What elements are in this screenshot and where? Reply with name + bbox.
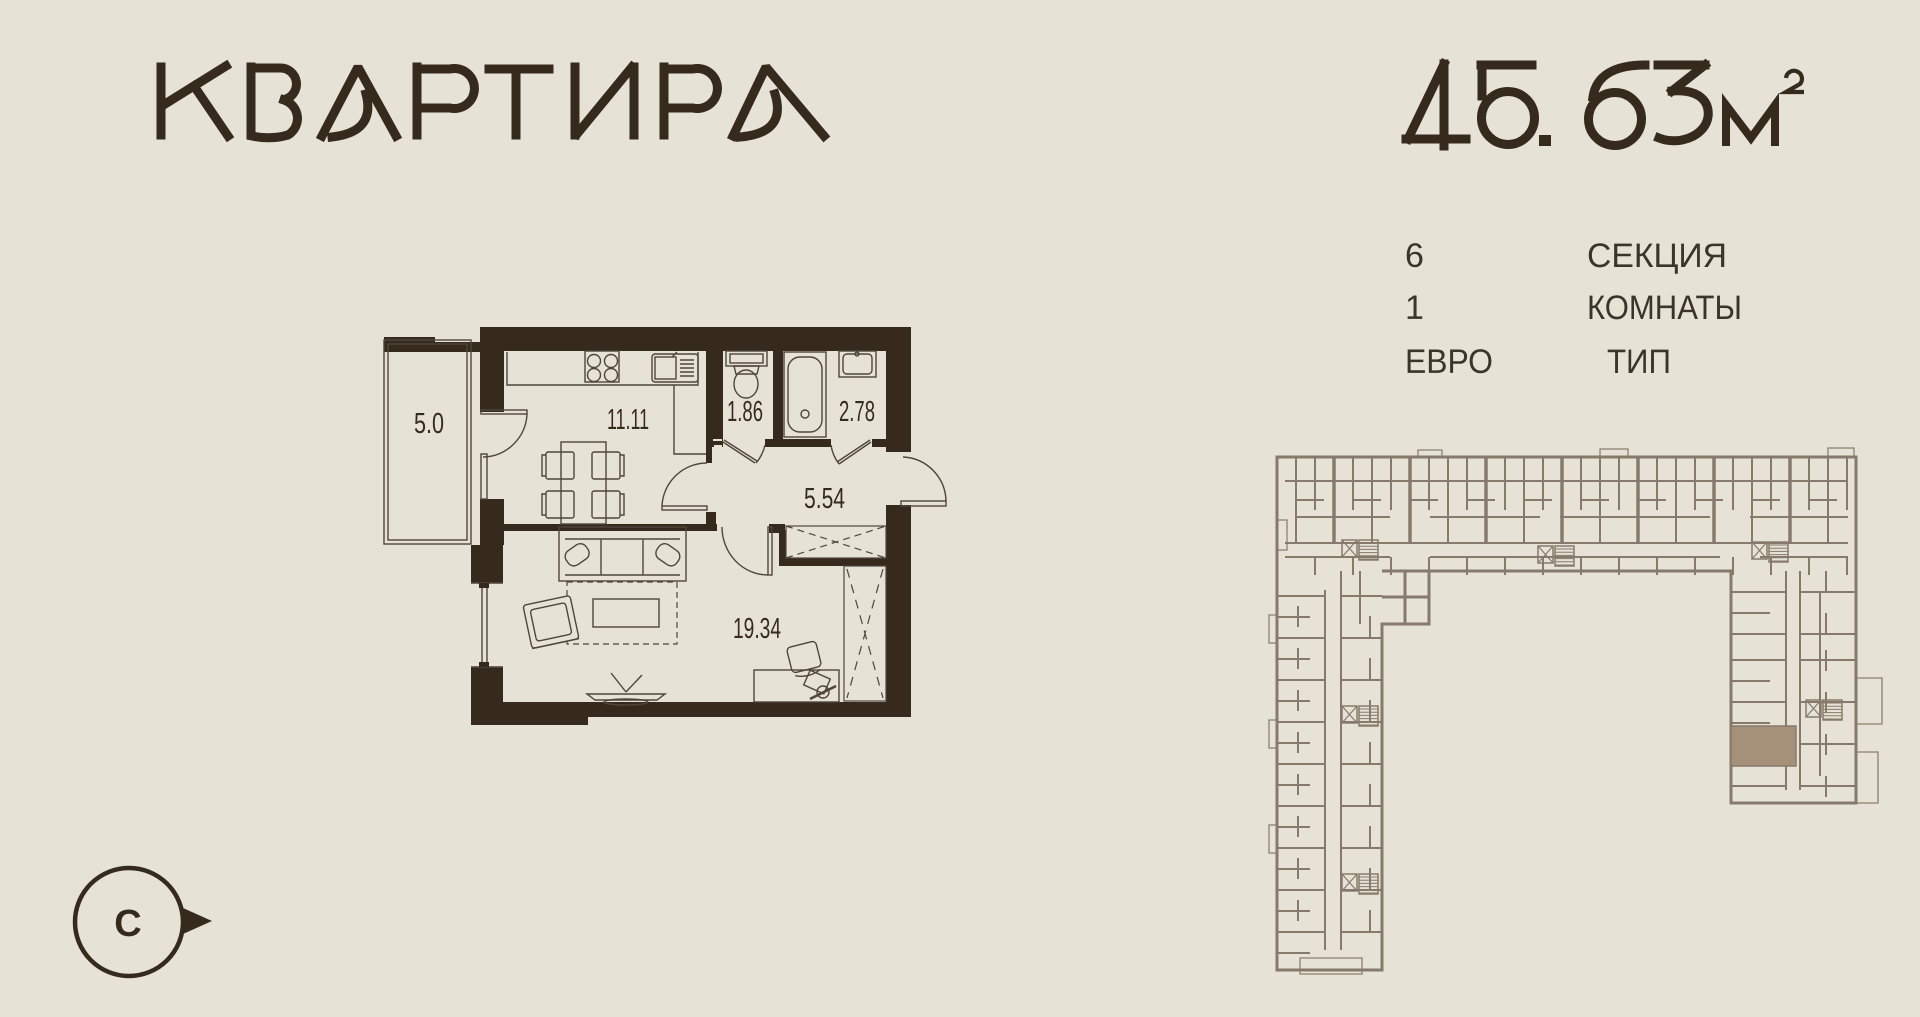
svg-text:5.0: 5.0 (414, 408, 444, 440)
svg-text:ЕВРО: ЕВРО (1405, 343, 1493, 381)
svg-text:ТИП: ТИП (1607, 343, 1671, 381)
svg-text:С: С (114, 903, 141, 945)
svg-text:СЕКЦИЯ: СЕКЦИЯ (1587, 237, 1727, 275)
svg-text:1: 1 (1405, 289, 1424, 327)
svg-text:19.34: 19.34 (733, 613, 781, 645)
svg-text:5.54: 5.54 (804, 483, 845, 515)
svg-text:6: 6 (1405, 237, 1424, 275)
svg-text:КОМНАТЫ: КОМНАТЫ (1587, 289, 1742, 327)
svg-text:2.78: 2.78 (839, 396, 875, 428)
svg-text:11.11: 11.11 (607, 404, 649, 436)
svg-text:1.86: 1.86 (727, 396, 763, 428)
